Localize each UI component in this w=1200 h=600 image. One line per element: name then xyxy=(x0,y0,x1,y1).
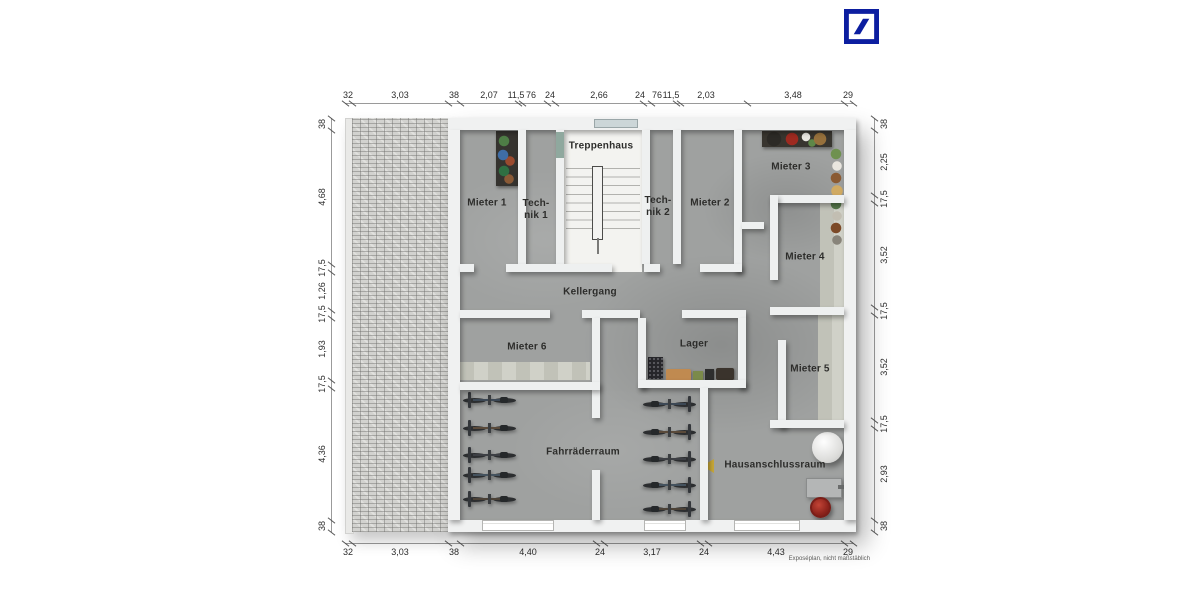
room-label-mieter4: Mieter 4 xyxy=(785,252,824,263)
dimension-label: 32 xyxy=(343,90,353,100)
dimension-tick xyxy=(705,540,713,546)
dimension-label: 11,5 xyxy=(663,90,680,100)
dimension-label: 38 xyxy=(879,119,889,129)
dimension-tick xyxy=(328,115,336,121)
dimension-tick xyxy=(850,100,858,106)
wall-segment xyxy=(638,318,646,388)
wall-segment xyxy=(460,382,600,390)
stair-handrail xyxy=(592,166,603,240)
wall-segment xyxy=(700,264,742,272)
dimension-tick xyxy=(342,540,350,546)
dimension-label: 2,07 xyxy=(480,90,498,100)
dimension-tick xyxy=(457,100,465,106)
deutsche-bank-logo xyxy=(844,9,879,44)
room-label-technik2: Tech-nik 2 xyxy=(645,195,672,219)
dimension-label: 76 xyxy=(526,90,536,100)
dimension-label: 3,03 xyxy=(391,90,409,100)
dimension-tick xyxy=(871,517,879,523)
dimension-label: 3,52 xyxy=(879,246,889,264)
room-label-lager: Lager xyxy=(680,339,708,350)
dimension-tick xyxy=(697,540,705,546)
dimension-tick xyxy=(515,100,523,106)
floor-plan-canvas: 323,03382,0711,576242,66247611,52,033,48… xyxy=(0,0,1200,600)
dimension-tick xyxy=(871,115,879,121)
technik2-line1: Tech- xyxy=(645,195,672,206)
dimension-tick xyxy=(349,540,357,546)
dimension-tick xyxy=(457,540,465,546)
dimension-tick xyxy=(871,200,879,206)
dimension-tick xyxy=(871,425,879,431)
dimension-label: 17,5 xyxy=(879,190,889,208)
dimension-tick xyxy=(673,100,681,106)
staircase-window xyxy=(594,119,638,128)
wall-segment xyxy=(448,118,856,130)
wall-segment xyxy=(518,130,526,264)
wall-segment xyxy=(770,420,844,428)
dimension-tick xyxy=(328,315,336,321)
stairs xyxy=(566,168,640,236)
mieter1-storage-shelf xyxy=(496,131,518,186)
dimension-label: 2,25 xyxy=(879,153,889,171)
dimension-label: 2,93 xyxy=(879,465,889,483)
dimension-label: 24 xyxy=(699,547,709,557)
dimension-tick xyxy=(871,192,879,198)
dimension-tick xyxy=(871,127,879,133)
dimension-tick xyxy=(519,100,527,106)
house-connection-box xyxy=(806,478,842,498)
dimension-label: 17,5 xyxy=(317,375,327,393)
dimension-tick xyxy=(871,304,879,310)
dimension-label: 4,36 xyxy=(317,445,327,463)
room-label-mieter2: Mieter 2 xyxy=(690,198,729,209)
room-label-mieter1: Mieter 1 xyxy=(467,198,506,209)
dimension-tick xyxy=(328,377,336,383)
technik1-line1: Tech- xyxy=(523,198,550,209)
room-label-fahrraederraum: Fahrräderraum xyxy=(546,447,620,458)
technik1-line2: nik 1 xyxy=(524,210,548,221)
wall-segment xyxy=(734,130,742,272)
wall-segment xyxy=(592,470,600,520)
dimension-label: 29 xyxy=(843,90,853,100)
room-label-mieter6: Mieter 6 xyxy=(507,342,546,353)
dimension-label: 38 xyxy=(317,521,327,531)
dimension-tick xyxy=(328,517,336,523)
dimension-label: 17,5 xyxy=(879,415,889,433)
room-label-mieter3: Mieter 3 xyxy=(771,162,810,173)
dimension-tick xyxy=(871,529,879,535)
red-valve-wheel xyxy=(810,497,831,518)
wall-segment xyxy=(506,264,612,272)
lager-box xyxy=(693,371,703,380)
dimension-label: 11,5 xyxy=(508,90,525,100)
paved-courtyard xyxy=(352,118,448,532)
dimension-tick xyxy=(445,540,453,546)
dimension-label: 76 xyxy=(652,90,662,100)
wall-segment xyxy=(770,307,844,315)
dimension-label: 3,17 xyxy=(643,547,661,557)
dimension-tick xyxy=(328,529,336,535)
dimension-label: 17,5 xyxy=(879,302,889,320)
dimension-tick xyxy=(328,261,336,267)
dimension-label: 2,03 xyxy=(697,90,715,100)
dimension-label: 24 xyxy=(545,90,555,100)
dimension-tick xyxy=(328,127,336,133)
deutsche-bank-logo-svg xyxy=(844,9,879,44)
basement-window xyxy=(734,520,800,531)
dimension-label: 32 xyxy=(343,547,353,557)
wall-segment xyxy=(673,130,681,264)
lager-pegboard xyxy=(648,357,663,379)
dimension-tick xyxy=(871,417,879,423)
basement-window xyxy=(644,520,686,531)
wall-segment xyxy=(778,340,786,428)
dimension-label: 17,5 xyxy=(317,305,327,323)
staircase-door xyxy=(556,132,564,158)
wall-segment xyxy=(770,195,844,203)
dimension-label: 4,43 xyxy=(767,547,785,557)
lager-tool xyxy=(705,369,714,380)
wall-segment xyxy=(844,130,856,520)
dimension-label: 38 xyxy=(879,521,889,531)
dimension-label: 38 xyxy=(449,547,459,557)
wall-segment xyxy=(582,310,640,318)
dimension-tick xyxy=(871,312,879,318)
room-label-treppenhaus: Treppenhaus xyxy=(569,141,633,152)
dimension-tick xyxy=(640,100,648,106)
wall-segment xyxy=(700,388,708,520)
dimension-label: 4,40 xyxy=(519,547,537,557)
mieter6-light-strip xyxy=(460,362,590,380)
dimension-tick xyxy=(601,540,609,546)
technik2-line2: nik 2 xyxy=(646,207,670,218)
wall-segment xyxy=(460,310,550,318)
dimension-label: 24 xyxy=(595,547,605,557)
wall-segment xyxy=(742,222,764,229)
water-tank xyxy=(812,432,843,463)
dimension-tick xyxy=(677,100,685,106)
wall-segment xyxy=(644,264,660,272)
wall-segment xyxy=(738,318,746,388)
dimension-tick xyxy=(850,540,858,546)
mieter3-storage-shelf xyxy=(762,131,832,147)
wall-segment xyxy=(592,318,600,418)
dimension-tick xyxy=(328,269,336,275)
wall-segment xyxy=(448,130,460,520)
room-label-technik1: Tech-nik 1 xyxy=(523,198,550,222)
stair-direction-line xyxy=(597,238,599,254)
dimension-label: 38 xyxy=(449,90,459,100)
dimension-tick xyxy=(648,100,656,106)
dimension-label: 3,03 xyxy=(391,547,409,557)
dimension-label: 1,93 xyxy=(317,340,327,358)
basement-window xyxy=(482,520,554,531)
dimension-label: 4,68 xyxy=(317,188,327,206)
dimension-label: 1,26 xyxy=(317,282,327,300)
dimension-tick xyxy=(328,385,336,391)
room-label-hausanschlussraum: Hausanschlussraum xyxy=(724,460,825,471)
disclaimer-note: Exposéplan, nicht maßstäblich xyxy=(789,556,870,562)
dimension-tick xyxy=(342,100,350,106)
lager-machine xyxy=(716,368,734,380)
dimension-tick xyxy=(328,307,336,313)
dimension-tick xyxy=(445,100,453,106)
dimension-label: 3,52 xyxy=(879,358,889,376)
dimension-tick xyxy=(841,540,849,546)
dimension-tick xyxy=(349,100,357,106)
dimension-tick xyxy=(593,540,601,546)
wall-segment xyxy=(638,380,746,388)
dimension-label: 38 xyxy=(317,119,327,129)
room-label-kellergang: Kellergang xyxy=(563,287,617,298)
dimension-tick xyxy=(552,100,560,106)
dimension-label: 2,66 xyxy=(590,90,608,100)
wall-segment xyxy=(682,310,746,318)
wall-segment xyxy=(460,264,474,272)
dimension-tick xyxy=(544,100,552,106)
dimension-tick xyxy=(744,100,752,106)
dimension-tick xyxy=(841,100,849,106)
dimension-label: 24 xyxy=(635,90,645,100)
room-label-mieter5: Mieter 5 xyxy=(790,364,829,375)
wall-segment xyxy=(770,195,778,280)
dimension-label: 3,48 xyxy=(784,90,802,100)
dimension-label: 17,5 xyxy=(317,259,327,277)
